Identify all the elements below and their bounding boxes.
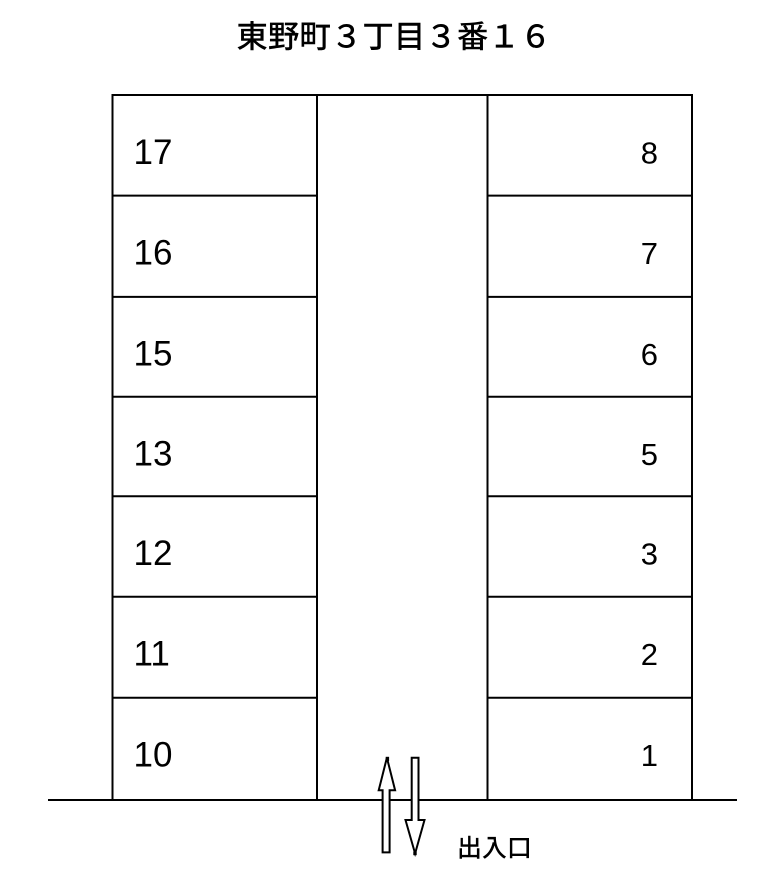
svg-text:10: 10 xyxy=(134,736,173,775)
svg-text:6: 6 xyxy=(641,337,658,372)
svg-text:7: 7 xyxy=(641,236,658,271)
svg-text:11: 11 xyxy=(134,635,170,674)
svg-text:2: 2 xyxy=(641,637,658,672)
svg-text:16: 16 xyxy=(134,233,173,272)
svg-text:3: 3 xyxy=(641,537,658,572)
svg-text:17: 17 xyxy=(134,133,173,172)
svg-text:15: 15 xyxy=(134,335,173,374)
svg-text:5: 5 xyxy=(641,437,658,472)
svg-text:1: 1 xyxy=(641,738,658,773)
svg-text:13: 13 xyxy=(134,435,173,474)
svg-text:8: 8 xyxy=(641,135,658,170)
svg-text:12: 12 xyxy=(134,534,173,573)
